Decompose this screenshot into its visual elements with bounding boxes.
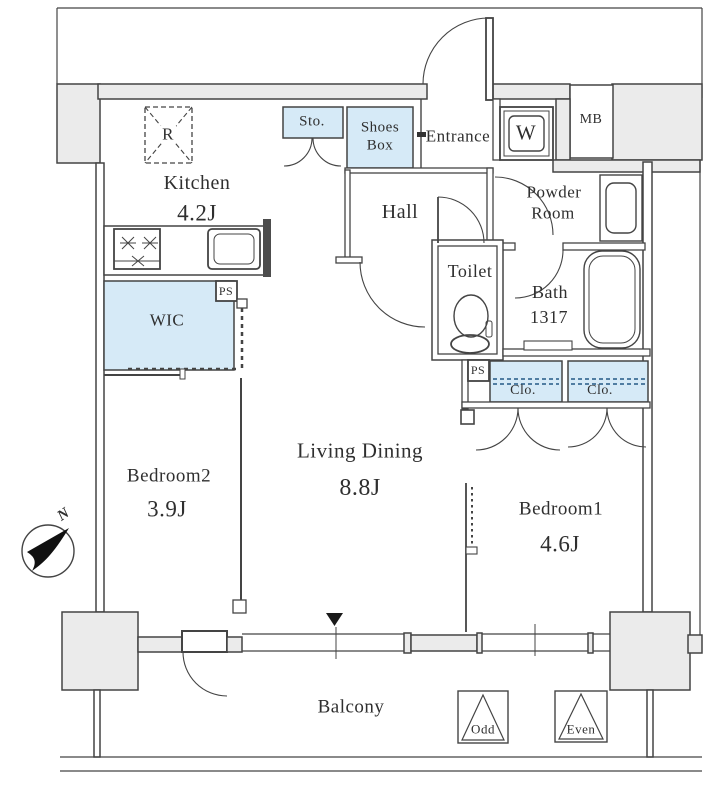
entrance-door-leaf bbox=[486, 18, 493, 100]
refrigerator-label: R bbox=[160, 126, 176, 143]
wic-label: WIC bbox=[150, 312, 185, 329]
bedroom2-label: Bedroom2 bbox=[127, 467, 211, 486]
corner-block-nw bbox=[57, 84, 100, 163]
shoes-box-label-2: Box bbox=[367, 139, 394, 154]
closet-2-label: Clo. bbox=[587, 384, 613, 398]
bedroom1-partition bbox=[461, 410, 477, 632]
entrance-label: Entrance bbox=[426, 128, 490, 145]
entrance-door-arc bbox=[423, 18, 489, 84]
south-wall bbox=[138, 613, 610, 696]
west-wall bbox=[96, 163, 104, 612]
hall-label: Hall bbox=[382, 202, 418, 222]
powder-room-label-2: Room bbox=[531, 205, 575, 222]
toilet-door-arc bbox=[438, 197, 484, 243]
powder-room-label-1: Powder bbox=[527, 184, 582, 201]
bedroom2-partition bbox=[233, 378, 246, 613]
bedroom2-size: 3.9J bbox=[147, 498, 187, 521]
pillar-sw bbox=[62, 612, 138, 690]
closet-door-arc bbox=[568, 408, 607, 447]
pipe-space-label-east: PS bbox=[471, 364, 485, 376]
pillar-se bbox=[610, 612, 690, 690]
hall-door-arc bbox=[360, 262, 425, 327]
living-dining-size: 8.8J bbox=[339, 476, 380, 500]
bath-area bbox=[503, 251, 650, 356]
storage-label: Sto. bbox=[299, 115, 325, 130]
bath-size: 1317 bbox=[530, 308, 568, 326]
bathtub bbox=[584, 251, 640, 348]
living-dining-label: Living Dining bbox=[297, 441, 423, 462]
pipe-space-label-west: PS bbox=[219, 285, 233, 297]
washer-label: W bbox=[516, 123, 536, 144]
bedroom1-label: Bedroom1 bbox=[519, 500, 603, 519]
balcony-door-arc bbox=[183, 652, 227, 696]
balcony-label: Balcony bbox=[318, 698, 385, 717]
storage-door-arc bbox=[313, 138, 341, 166]
bedroom1-size: 4.6J bbox=[540, 533, 580, 556]
kitchen-label: Kitchen bbox=[164, 173, 231, 193]
closets bbox=[462, 360, 650, 450]
floorplan-canvas bbox=[0, 0, 713, 800]
compass-north-icon bbox=[22, 525, 74, 577]
closet-door-arc bbox=[518, 408, 560, 450]
spandrel-wall bbox=[411, 635, 477, 651]
entry-marker-icon bbox=[326, 613, 343, 626]
bath-label: Bath bbox=[532, 283, 568, 301]
even-hatch-label: Even bbox=[567, 723, 596, 736]
counter-end-wall bbox=[263, 219, 271, 277]
storage-door-arc bbox=[284, 138, 312, 166]
meter-box-label: MB bbox=[580, 113, 603, 127]
corner-block-ne bbox=[612, 84, 702, 160]
floor-plan: Kitchen 4.2J R Sto. Shoes Box Entrance W… bbox=[0, 0, 713, 800]
odd-hatch-label: Odd bbox=[471, 723, 495, 736]
kitchen-size: 4.2J bbox=[177, 202, 217, 225]
closet-door-arc bbox=[607, 408, 646, 447]
closet-1-label: Clo. bbox=[510, 384, 536, 398]
balcony-door-leaf bbox=[182, 631, 227, 652]
kitchen-counter bbox=[104, 226, 264, 275]
shoes-box-label-1: Shoes bbox=[361, 121, 399, 136]
closet-door-arc bbox=[476, 408, 518, 450]
toilet-label: Toilet bbox=[448, 262, 493, 280]
